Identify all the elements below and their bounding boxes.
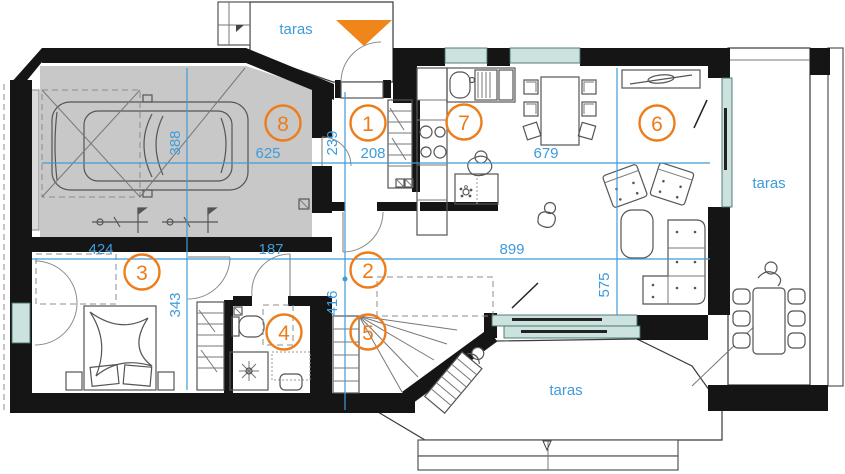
- kitchen-sink: [447, 68, 515, 102]
- dim-208: 208: [360, 145, 385, 162]
- dim-343: 343: [167, 292, 184, 317]
- room-number-5: 5: [362, 322, 374, 345]
- room-number-7: 7: [458, 112, 470, 135]
- armchairs: [602, 162, 694, 208]
- room-number-4: 4: [278, 322, 290, 345]
- kitchen-island: [455, 174, 498, 204]
- room-number-3: 3: [136, 262, 148, 285]
- bathroom-door-arc: [252, 254, 290, 296]
- dim-416: 416: [324, 290, 341, 315]
- room-number-1: 1: [362, 113, 374, 136]
- dim-899: 899: [499, 241, 524, 258]
- dim-239: 239: [324, 130, 341, 155]
- room-number-8: 8: [277, 113, 289, 136]
- outdoor-dining-set: [733, 262, 805, 354]
- dining-table: [523, 77, 596, 145]
- vanity-sink: [272, 352, 310, 390]
- bedroom-wardrobe: [197, 302, 224, 390]
- kitchen-window-2: [510, 48, 580, 63]
- terrace-label-right: taras: [752, 175, 785, 192]
- entry-closet: [388, 100, 413, 188]
- hall-door-arc: [343, 212, 383, 252]
- bedroom-window: [12, 303, 30, 343]
- dim-388: 388: [167, 130, 184, 155]
- window-leaf-arc-2: [35, 303, 77, 345]
- bed: [66, 306, 174, 390]
- kitchen-window-1: [445, 48, 487, 63]
- floor-plan-page: 625 388 239 208 679 424 187 899 343 416 …: [0, 0, 845, 474]
- terrace-label-bottom: taras: [549, 382, 582, 399]
- terrace-label-top: taras: [279, 21, 312, 38]
- entrance-door-sill: [341, 82, 383, 98]
- dim-625: 625: [255, 145, 280, 162]
- window-leaf-arc-1: [35, 261, 77, 303]
- person-walking: [538, 203, 556, 228]
- dim-187: 187: [258, 241, 283, 258]
- corner-sofa: [643, 220, 705, 304]
- shower: [230, 352, 268, 390]
- coffee-table: [621, 210, 653, 258]
- entrance-door-arc: [341, 42, 381, 82]
- entrance-arrow-icon: [336, 20, 392, 46]
- wardrobe-outline: [36, 254, 116, 304]
- room-number-2: 2: [362, 260, 374, 283]
- toilet: [232, 316, 264, 337]
- stove: [420, 126, 446, 158]
- dim-679: 679: [533, 145, 558, 162]
- room-number-6: 6: [651, 113, 663, 136]
- floor-plan-drawing: 625 388 239 208 679 424 187 899 343 416 …: [0, 0, 845, 474]
- dim-424: 424: [88, 241, 113, 258]
- dim-575: 575: [596, 272, 613, 297]
- tv-sideboard: [622, 70, 700, 88]
- bedroom-door-arc: [188, 257, 230, 299]
